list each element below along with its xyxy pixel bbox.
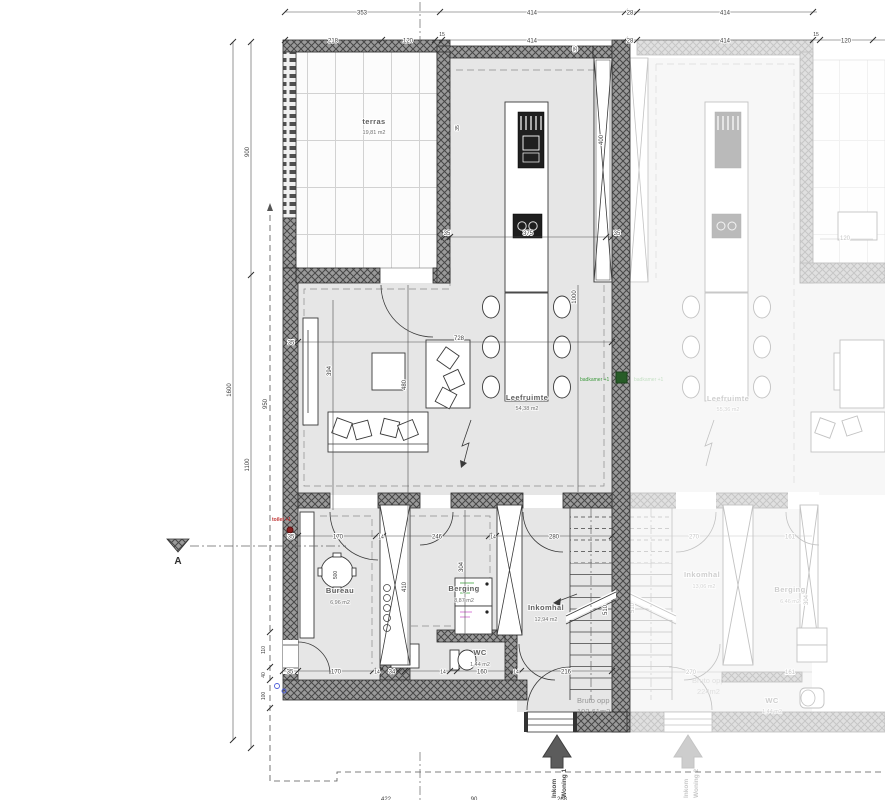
dim-top2-120: 120 (403, 39, 414, 45)
unit2-terras-left-wall (800, 52, 813, 283)
dim-hb-14: 14 (374, 670, 380, 676)
room-label-bureau: Bureau (326, 586, 354, 595)
floor-plan-drawing: 270 161 270 161 510 304 120 Leefruimte 5… (0, 0, 885, 800)
dim-living-1000: 1000 (572, 290, 578, 304)
dim-hb-34: 34 (389, 670, 396, 676)
dim-left-40: 40 (261, 672, 267, 678)
room-area-leefruimte: 54,38 m2 (516, 406, 539, 412)
unit2-entry-sill (664, 712, 712, 732)
room-label-berging: Berging (448, 584, 479, 593)
dim-hall-14b: 14 (490, 535, 496, 541)
tech-dot (485, 582, 488, 585)
dim-top1-353: 353 (357, 11, 368, 17)
dim-left-950: 950 (263, 398, 269, 409)
party-wall (612, 40, 630, 732)
dim-kitchen-35l: 35 (444, 231, 451, 237)
dim-left-100: 100 (261, 692, 267, 701)
dim-hb-170: 170 (331, 670, 342, 676)
unit2-sink (712, 214, 741, 238)
dim-top2-414b: 414 (720, 39, 731, 45)
unit2-hall-wall (630, 493, 812, 508)
unit2-room-label-leefruimte: Leefruimte (707, 394, 749, 403)
unit2-bruto-value: 224m2 (697, 687, 720, 696)
dim-top2-15: 15 (439, 32, 445, 38)
dim-top2-414: 414 (527, 39, 538, 45)
dim-living-728: 728 (454, 336, 465, 342)
dim-hb-14c: 14 (513, 670, 519, 676)
unit2-room-area-berging: 6,46 m2 (780, 599, 800, 605)
unit2-room-label-wc: WC (765, 696, 778, 705)
cushion (380, 418, 399, 437)
unit2-dining-table (705, 293, 748, 401)
dim-u2-bot-161: 161 (785, 670, 796, 676)
dim-left-900: 900 (245, 146, 251, 157)
kitchen (505, 102, 548, 292)
dim-top-35: 35 (573, 46, 579, 52)
unit2-window (630, 58, 648, 282)
unit2-badkamer-note: badkamer +1 (634, 377, 664, 383)
entry (524, 712, 577, 768)
terras-top-wall (283, 40, 450, 52)
terras-bottom-wall-a (296, 268, 380, 283)
entry-jamb (524, 712, 528, 732)
unit2-terras-bottom-wall (800, 263, 885, 283)
unit2-room-label-inkomhal: Inkomhal (684, 570, 720, 579)
dim-terras-35: 35 (455, 125, 461, 131)
section-marker-label: A (174, 556, 181, 567)
room-label-inkomhal: Inkomhal (528, 603, 564, 612)
dim-living-35: 35 (288, 341, 295, 347)
dim-top2-120b: 120 (841, 39, 852, 45)
dim-top1-28: 28 (627, 11, 634, 17)
entry-text-2: Woning 1 (561, 768, 568, 798)
unit2-tech-cabinet (797, 645, 827, 662)
terras-floor (296, 52, 437, 268)
bureau-chair (318, 568, 322, 576)
dim-top1-414: 414 (527, 11, 538, 17)
dim-kitchen-35r: 35 (614, 231, 621, 237)
dim-top2-218: 218 (328, 39, 339, 45)
dim-living-480: 480 (402, 379, 408, 390)
dim-304: 304 (459, 561, 465, 572)
hall-wall-a (298, 493, 330, 508)
entry-sill (527, 712, 575, 732)
room-area-inkomhal: 12,94 m2 (535, 617, 558, 623)
terras-left-wall (283, 218, 296, 268)
dim-hb-35: 35 (287, 670, 294, 676)
tech-dot (485, 610, 488, 613)
dim-table-500: 500 (333, 571, 339, 580)
bruto-label: Bruto opp : (577, 696, 614, 705)
dim-u2-304: 304 (804, 594, 810, 605)
dim-u2-terras-120: 120 (840, 236, 851, 242)
dim-left-1100: 1100 (245, 458, 251, 472)
room-label-wc: WC (473, 648, 486, 657)
property-line-arrow (267, 203, 273, 211)
cushion (352, 420, 372, 440)
dim-living-394: 394 (327, 365, 333, 376)
dim-hb-216: 216 (561, 670, 572, 676)
section-marker-triangle (167, 539, 189, 552)
tech-cabinet-bottom (455, 606, 492, 634)
dim-u2-top-161: 161 (785, 535, 796, 541)
unit2-entry-text-1: Inkom (683, 779, 690, 798)
dim-left-1600: 1600 (227, 383, 233, 397)
unit2-faded-plan: 270 161 270 161 510 304 120 Leefruimte 5… (626, 40, 885, 798)
dining-table (505, 293, 548, 401)
dim-u2-top-270: 270 (689, 535, 700, 541)
entry-arrow (543, 735, 571, 768)
unit2-door-gap (676, 492, 716, 509)
bureau-closet (300, 512, 314, 638)
unit2-room-area-wc: 1,44 m2 (762, 709, 782, 715)
unit2-room-area-leefruimte: 55,36 m2 (717, 407, 740, 413)
toilet-marker (287, 527, 293, 533)
dim-window-400: 400 (599, 134, 605, 145)
dim-top2-15b: 15 (813, 32, 819, 38)
unit2-bruto-label: Bruto opp (692, 676, 725, 685)
unit2-entry-arrow (674, 735, 702, 768)
dim-left-110: 110 (261, 646, 267, 654)
dim-hall-246: 246 (432, 535, 443, 541)
kitchen-left-wall (437, 52, 450, 283)
entry-text-1: Inkom (551, 779, 558, 798)
hall-wall-d (563, 493, 612, 508)
unit2-room-label-berging: Berging (774, 585, 805, 594)
living-window (594, 58, 612, 282)
dim-top2-28: 28 (627, 39, 634, 45)
terras-fence (283, 52, 296, 218)
unit2-tech-cabinet (797, 628, 827, 645)
wc-right-wall (505, 630, 517, 688)
toilet-note: toilet +1 (272, 517, 291, 523)
bottom-wall (283, 680, 527, 700)
dim-hall-35: 35 (288, 535, 295, 541)
dim-hall-14: 14 (378, 535, 384, 541)
dim-hb-160: 160 (477, 670, 488, 676)
tv-cabinet (303, 318, 318, 425)
bureau-chair (352, 568, 356, 576)
bureau-chair (333, 553, 341, 557)
unit2-entry-text-2: Woning 2 (693, 768, 700, 798)
dim-stairs-510: 510 (603, 604, 609, 615)
badkamer-marker (616, 372, 627, 383)
room-area-bureau: 6,96 m2 (330, 600, 350, 606)
room-area-berging: 8,87 m2 (454, 598, 474, 604)
dim-hall-280: 280 (549, 535, 560, 541)
room-area-wc: 1,44 m2 (470, 662, 490, 668)
dim-top1-414b: 414 (720, 11, 731, 17)
dim-hall-170: 170 (333, 535, 344, 541)
room-label-terras: terras (362, 117, 385, 126)
dim-hb-14b: 14 (440, 670, 446, 676)
dining (483, 293, 571, 401)
top-corner-wall (593, 46, 612, 58)
badkamer-note: badkamer +1 (580, 377, 610, 383)
room-area-terras: 19,81 m2 (363, 130, 386, 136)
room-label-leefruimte: Leefruimte (506, 393, 548, 402)
dim-kitchen-375: 375 (523, 231, 534, 237)
bruto-value: 192,61m2 (577, 707, 610, 716)
left-wall (283, 268, 298, 680)
unit2-room-area-inkomhal: 13,06 m2 (693, 584, 716, 590)
coffee-table (372, 353, 405, 390)
dim-panel-410: 410 (402, 581, 408, 592)
unit2-chaise (840, 340, 884, 408)
dim-u2-stairs-510: 510 (630, 602, 636, 613)
kitchen-top-wall (437, 46, 593, 58)
